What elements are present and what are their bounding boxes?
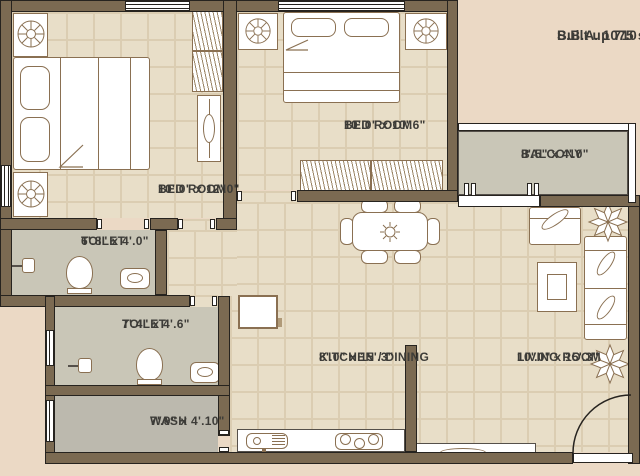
wall-toilet1-bottom	[0, 295, 190, 307]
wc-icon	[66, 256, 93, 289]
refrigerator	[238, 295, 278, 329]
dining-chair	[394, 250, 421, 264]
sofa-line	[585, 324, 626, 325]
door-jamb	[190, 296, 195, 306]
door-jamb	[97, 219, 102, 229]
mattress-line	[284, 90, 399, 91]
balcony-floor	[458, 131, 628, 195]
wc-tank	[67, 288, 92, 294]
rosette-decor-icon	[412, 17, 440, 45]
slider-post	[464, 183, 469, 196]
shower-arm	[68, 365, 78, 367]
window	[46, 330, 54, 366]
slider-post	[471, 183, 476, 196]
wall-balcony-bottom	[540, 195, 640, 207]
dining-chair	[426, 218, 440, 245]
mattress-line	[98, 58, 99, 169]
bedroom2-doorway-floor	[237, 191, 297, 202]
entrance-door-leaf	[573, 453, 633, 463]
balcony-railing	[458, 123, 636, 131]
sofa-line	[585, 288, 626, 289]
entrance-door-arc	[565, 390, 640, 460]
burner	[368, 434, 379, 445]
pillow	[291, 18, 336, 37]
window	[125, 1, 190, 11]
door-jamb	[210, 219, 215, 229]
room-dims: 10'.0" x 10'.6"	[344, 118, 426, 133]
window	[46, 400, 54, 442]
room-dims: 8'.0" x 15'.3"	[319, 350, 394, 365]
burner	[354, 438, 365, 449]
sba-area: S.B.A. 1075 sq.ft.	[557, 27, 640, 44]
room-dims: 7'.4" x 4'.6"	[122, 317, 190, 332]
balcony-slider-track	[458, 195, 540, 207]
dresser-mirror-icon	[203, 114, 215, 143]
shower-arm	[12, 265, 22, 267]
wall-bedroom2-right	[447, 0, 458, 202]
room-dims: 7'.9" x 4'.10"	[150, 414, 225, 429]
wall-bedroom1-bottom	[150, 218, 178, 230]
balcony-railing	[628, 123, 636, 203]
refrigerator-handle	[278, 318, 282, 327]
washbasin-bowl	[197, 367, 213, 377]
sofa-line	[585, 250, 626, 251]
rosette-decor-icon	[16, 179, 46, 209]
sun-decor-icon	[379, 221, 401, 243]
wall-bedroom1-bottom	[0, 218, 97, 230]
wardrobe	[300, 160, 371, 191]
pillow	[20, 117, 50, 162]
door-jamb	[219, 430, 229, 435]
wall-toilet2-wash-divider	[45, 385, 230, 396]
sink-drain	[253, 437, 261, 445]
rosette-decor-icon	[16, 19, 46, 49]
wardrobe	[192, 51, 223, 92]
door-jamb	[291, 191, 296, 201]
wardrobe	[192, 10, 223, 51]
coffee-table-inner	[547, 274, 567, 300]
wall-bottom	[45, 452, 573, 464]
room-dims: 8'.5" x 4'.0"	[521, 147, 589, 162]
room-dims: 10'.0" x 12'.0"	[158, 182, 240, 197]
rosette-decor-icon	[244, 17, 272, 45]
pillow	[20, 66, 50, 110]
slider-post	[534, 183, 539, 196]
slider-post	[527, 183, 532, 196]
room-dims: 6'.8" x 4'.0"	[81, 234, 149, 249]
burner	[340, 434, 351, 445]
blanket-fold-icon	[284, 38, 310, 60]
corridor-floor	[167, 230, 237, 296]
wall-left	[0, 0, 12, 307]
door-jamb	[144, 219, 149, 229]
wall-toilet1-right	[155, 230, 167, 295]
wall-bedroom1-bottom	[216, 218, 237, 230]
mattress-line	[284, 72, 399, 73]
shower-icon	[78, 358, 92, 373]
washbasin-bowl	[127, 273, 143, 283]
drainboard	[272, 435, 285, 447]
shower-icon	[22, 258, 35, 273]
floor-plan: BED ROOM 10'.0" x 12'.0" BED ROOM 10'.0"…	[0, 0, 640, 476]
window	[278, 1, 405, 11]
wall-kitchen-top	[297, 190, 458, 202]
wardrobe	[371, 160, 443, 191]
mattress-line	[130, 58, 131, 169]
room-dims: 10'.0" x 15'.3"	[517, 350, 599, 365]
blanket-fold-icon	[56, 143, 86, 170]
window	[1, 165, 11, 207]
door-jamb	[212, 296, 217, 306]
door-jamb	[178, 219, 183, 229]
dining-chair	[361, 250, 388, 264]
wc-icon	[136, 348, 163, 381]
plant-icon	[587, 201, 629, 243]
door-jamb	[219, 447, 229, 452]
pillow	[344, 18, 389, 37]
